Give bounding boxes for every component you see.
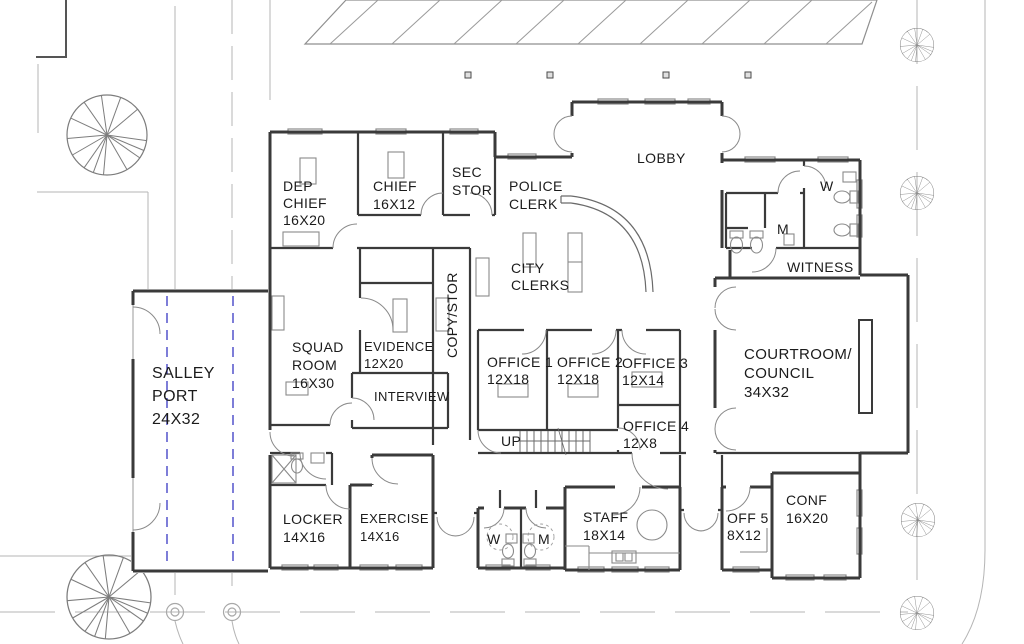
svg-text:PORT: PORT [152,388,198,405]
floor-plan-drawing: DEP CHIEF 16X20 CHIEF 16X12 SEC STOR POL… [0,0,1024,644]
road-edge-right [962,0,985,644]
svg-text:16X30: 16X30 [292,375,334,391]
tree-icon [67,95,147,175]
svg-text:STAFF: STAFF [583,509,628,525]
svg-text:16X20: 16X20 [283,212,325,228]
tree-icon [901,503,935,537]
svg-text:8X12: 8X12 [727,527,761,543]
room-label-w-top: W [820,178,834,194]
svg-text:OFF 5: OFF 5 [727,510,769,526]
room-label-w-bottom: W [487,531,501,547]
svg-text:ROOM: ROOM [292,357,337,373]
svg-text:COUNCIL: COUNCIL [744,365,814,382]
svg-text:SALLEY: SALLEY [152,365,215,382]
room-label-m-bottom: M [538,531,550,547]
svg-text:CONF: CONF [786,492,827,508]
svg-text:12X14: 12X14 [622,372,664,388]
svg-text:CHIEF: CHIEF [373,178,417,194]
svg-text:CLERKS: CLERKS [511,277,569,293]
svg-text:EVIDENCE: EVIDENCE [364,339,434,354]
svg-text:DEP: DEP [283,178,313,194]
svg-text:16X12: 16X12 [373,196,415,212]
svg-text:OFFICE 4: OFFICE 4 [623,418,689,434]
tree-icon [900,176,934,210]
svg-text:OFFICE 2: OFFICE 2 [557,354,623,370]
svg-text:16X20: 16X20 [786,510,828,526]
room-label-lobby: LOBBY [637,150,686,166]
curb-tails [175,621,239,644]
site-column-marker [663,72,669,78]
svg-text:POLICE: POLICE [509,178,563,194]
svg-text:CHIEF: CHIEF [283,195,327,211]
svg-text:34X32: 34X32 [744,384,789,401]
svg-text:SEC: SEC [452,164,482,180]
svg-text:OFFICE 1: OFFICE 1 [487,354,553,370]
svg-text:COURTROOM/: COURTROOM/ [744,346,852,363]
svg-text:OFFICE 3: OFFICE 3 [622,355,688,371]
room-label-m-top: M [777,221,789,237]
svg-text:12X18: 12X18 [557,371,599,387]
svg-text:14X16: 14X16 [283,529,325,545]
parking-canopy [305,0,877,44]
site-column-marker [547,72,553,78]
svg-text:STOR: STOR [452,182,492,198]
room-label-copy-stor: COPY/STOR [444,272,460,358]
room-label-interview: INTERVIEW [374,389,450,404]
svg-text:24X32: 24X32 [152,411,200,428]
site-column-marker [465,72,471,78]
svg-text:EXERCISE: EXERCISE [360,511,429,526]
tree-icon [900,596,934,630]
svg-text:LOCKER: LOCKER [283,511,343,527]
svg-text:12X8: 12X8 [623,435,657,451]
floor-plan-page: DEP CHIEF 16X20 CHIEF 16X12 SEC STOR POL… [0,0,1024,644]
svg-text:14X16: 14X16 [360,529,400,544]
svg-text:12X18: 12X18 [487,371,529,387]
svg-text:CLERK: CLERK [509,196,558,212]
svg-text:SQUAD: SQUAD [292,339,344,355]
tree-icon [900,28,934,62]
stairs-up-label: UP [501,433,521,449]
property-corner-topleft [36,0,66,57]
svg-text:CITY: CITY [511,260,545,276]
site-column-marker [745,72,751,78]
svg-text:18X14: 18X14 [583,527,625,543]
courtroom-bench [859,320,872,413]
room-label-witness: WITNESS [787,259,854,275]
svg-text:12X20: 12X20 [364,356,404,371]
